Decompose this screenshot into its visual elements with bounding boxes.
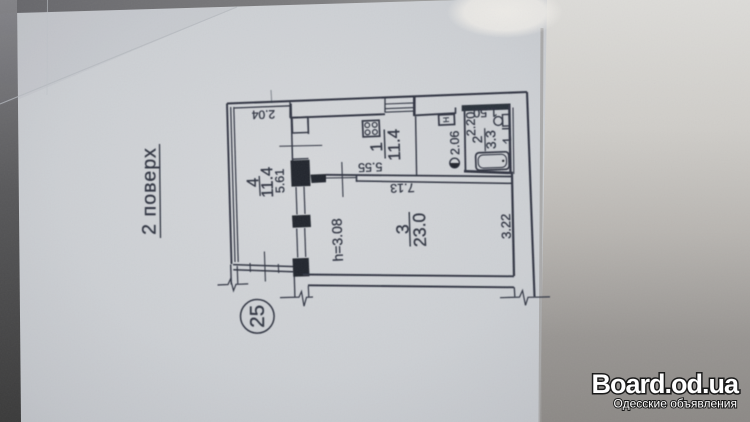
svg-text:Одесские объявления: Одесские объявления: [614, 397, 737, 411]
svg-text:Board.od.ua: Board.od.ua: [591, 369, 739, 399]
